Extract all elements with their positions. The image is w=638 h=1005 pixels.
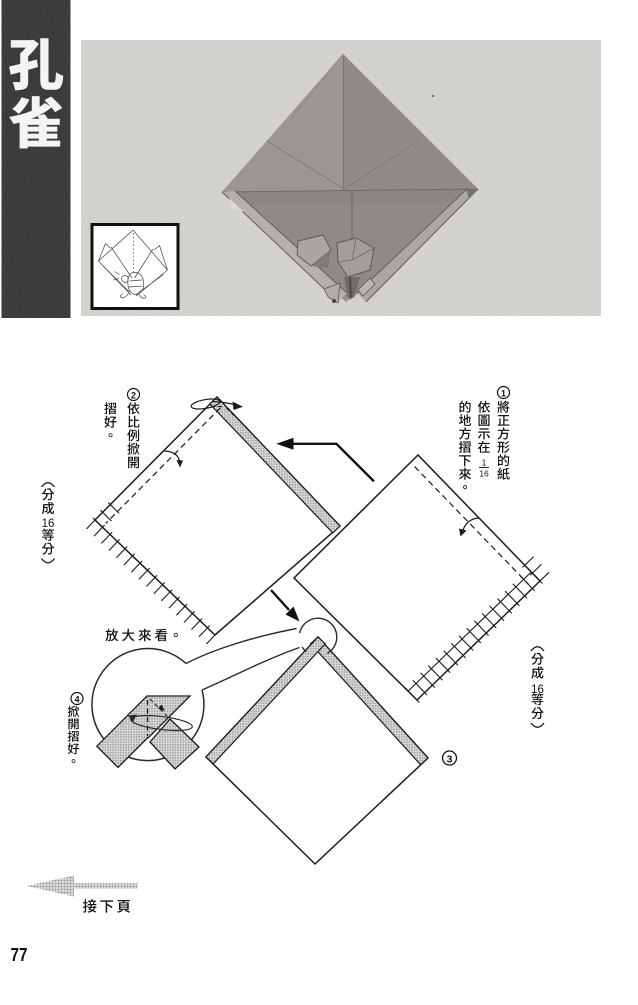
svg-text:1: 1 [482,458,487,468]
svg-text:4: 4 [74,694,79,704]
svg-text:16: 16 [42,518,55,530]
svg-text:16: 16 [479,469,489,479]
svg-text:77: 77 [11,945,28,965]
svg-text:1: 1 [501,388,506,398]
svg-text:3: 3 [447,754,453,766]
svg-text:2: 2 [131,390,136,400]
